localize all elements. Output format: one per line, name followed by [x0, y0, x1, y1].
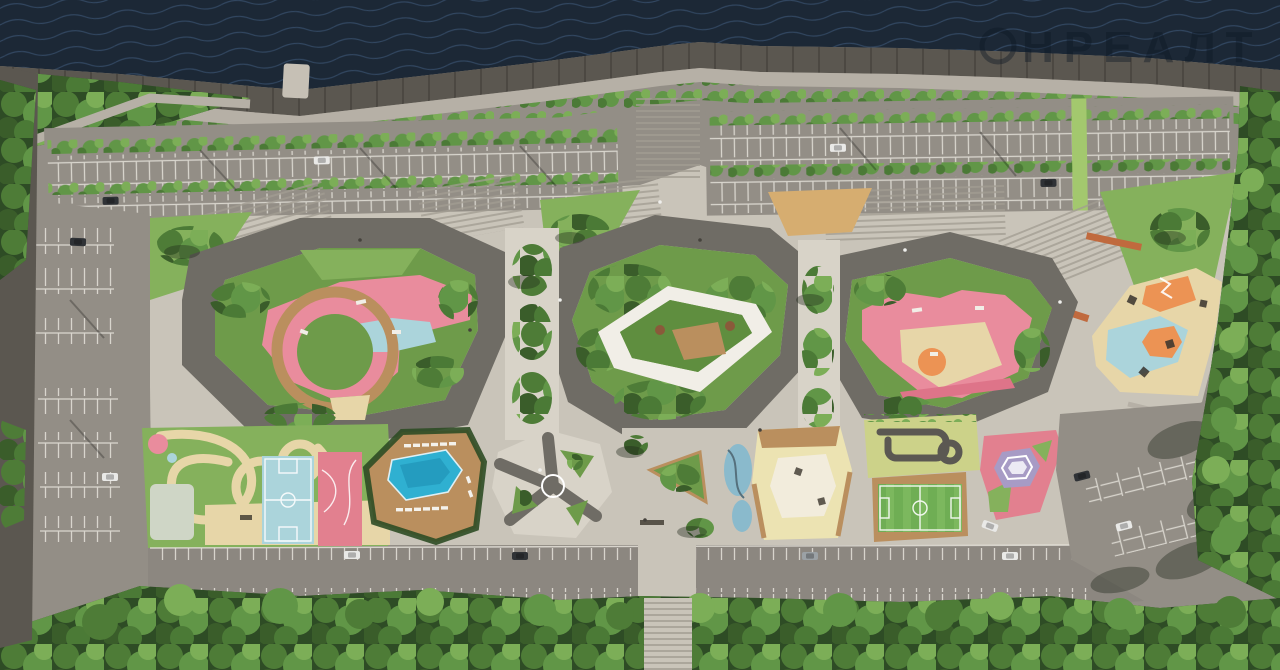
- lot-w-stalls: [38, 432, 118, 458]
- tree-cluster: [412, 356, 464, 388]
- pink-court: [318, 452, 362, 546]
- tree-cluster: [512, 372, 552, 424]
- forest-stairs: [644, 598, 692, 670]
- aerial-masterplan-render: Aerial 3D render of a riverside resident…: [0, 0, 1280, 670]
- lot-w-stalls: [40, 516, 120, 542]
- lot-ne-green-median: [1071, 98, 1088, 210]
- playground-west-mound: [297, 314, 373, 390]
- pool-area: [366, 430, 484, 542]
- parked-car: [512, 552, 528, 560]
- yellow-hex-playground: [752, 426, 852, 540]
- playground-west-sand: [330, 395, 370, 420]
- shrub: [725, 321, 735, 331]
- tree-cluster: [567, 454, 583, 470]
- masterplan-canvas: Aerial 3D render of a riverside resident…: [0, 0, 1280, 670]
- west-edge-green-2: [0, 420, 26, 530]
- pier-platform: [282, 63, 310, 98]
- parked-car: [1040, 179, 1056, 187]
- stairs-to-promenade: [636, 96, 700, 180]
- tree-cluster: [802, 328, 834, 376]
- tree-cluster: [660, 464, 700, 492]
- parking-lot-west: [28, 200, 152, 638]
- tree-cluster: [438, 280, 478, 320]
- walk-strip-west: [505, 228, 559, 440]
- mini-play-dot: [167, 453, 177, 463]
- mini-play-circle: [148, 434, 168, 454]
- west-edge: [0, 66, 38, 648]
- watermark: НРЕАЛТ: [982, 23, 1263, 72]
- parked-car: [314, 156, 330, 164]
- yellow-pad-center: [770, 454, 836, 518]
- parked-car: [802, 552, 818, 560]
- tree-cluster: [854, 274, 906, 306]
- tree-cluster: [516, 490, 532, 506]
- parked-car: [1002, 552, 1018, 560]
- traffic-hedge: [864, 414, 976, 422]
- traffic-town: [864, 414, 980, 478]
- parked-car: [103, 197, 119, 205]
- shrub: [655, 325, 665, 335]
- tree-cluster: [802, 266, 834, 314]
- sports-courts-west: [262, 452, 362, 546]
- splash-blue-2: [732, 500, 752, 532]
- raised-crossing: [638, 545, 696, 603]
- canopy-structure: [150, 484, 194, 540]
- lot-w-stalls: [38, 388, 118, 414]
- tree-cluster: [1014, 328, 1050, 372]
- road-stalls-north: [160, 548, 1090, 561]
- tree-cluster: [1150, 208, 1210, 252]
- tree-cluster: [802, 388, 834, 428]
- parking-lot-northwest: [44, 116, 623, 220]
- mini-football-pitch: [872, 472, 968, 542]
- tree-plaza: [622, 428, 718, 545]
- parked-car: [830, 144, 846, 152]
- walk-strip-east: [798, 240, 840, 440]
- lot-w-surface: [28, 200, 152, 638]
- lot-ne-stalls-1: [710, 118, 1231, 165]
- traffic-town-surface: [864, 414, 980, 478]
- tree-cluster: [512, 304, 552, 360]
- watermark-text: НРЕАЛТ: [1022, 23, 1263, 72]
- parked-car: [70, 238, 86, 247]
- tree-cluster: [210, 282, 270, 318]
- lot-w-stalls: [36, 268, 114, 294]
- parked-car: [102, 473, 118, 481]
- courtyard-west: [182, 218, 508, 442]
- parked-car: [344, 551, 360, 559]
- lot-w-stalls: [36, 318, 114, 344]
